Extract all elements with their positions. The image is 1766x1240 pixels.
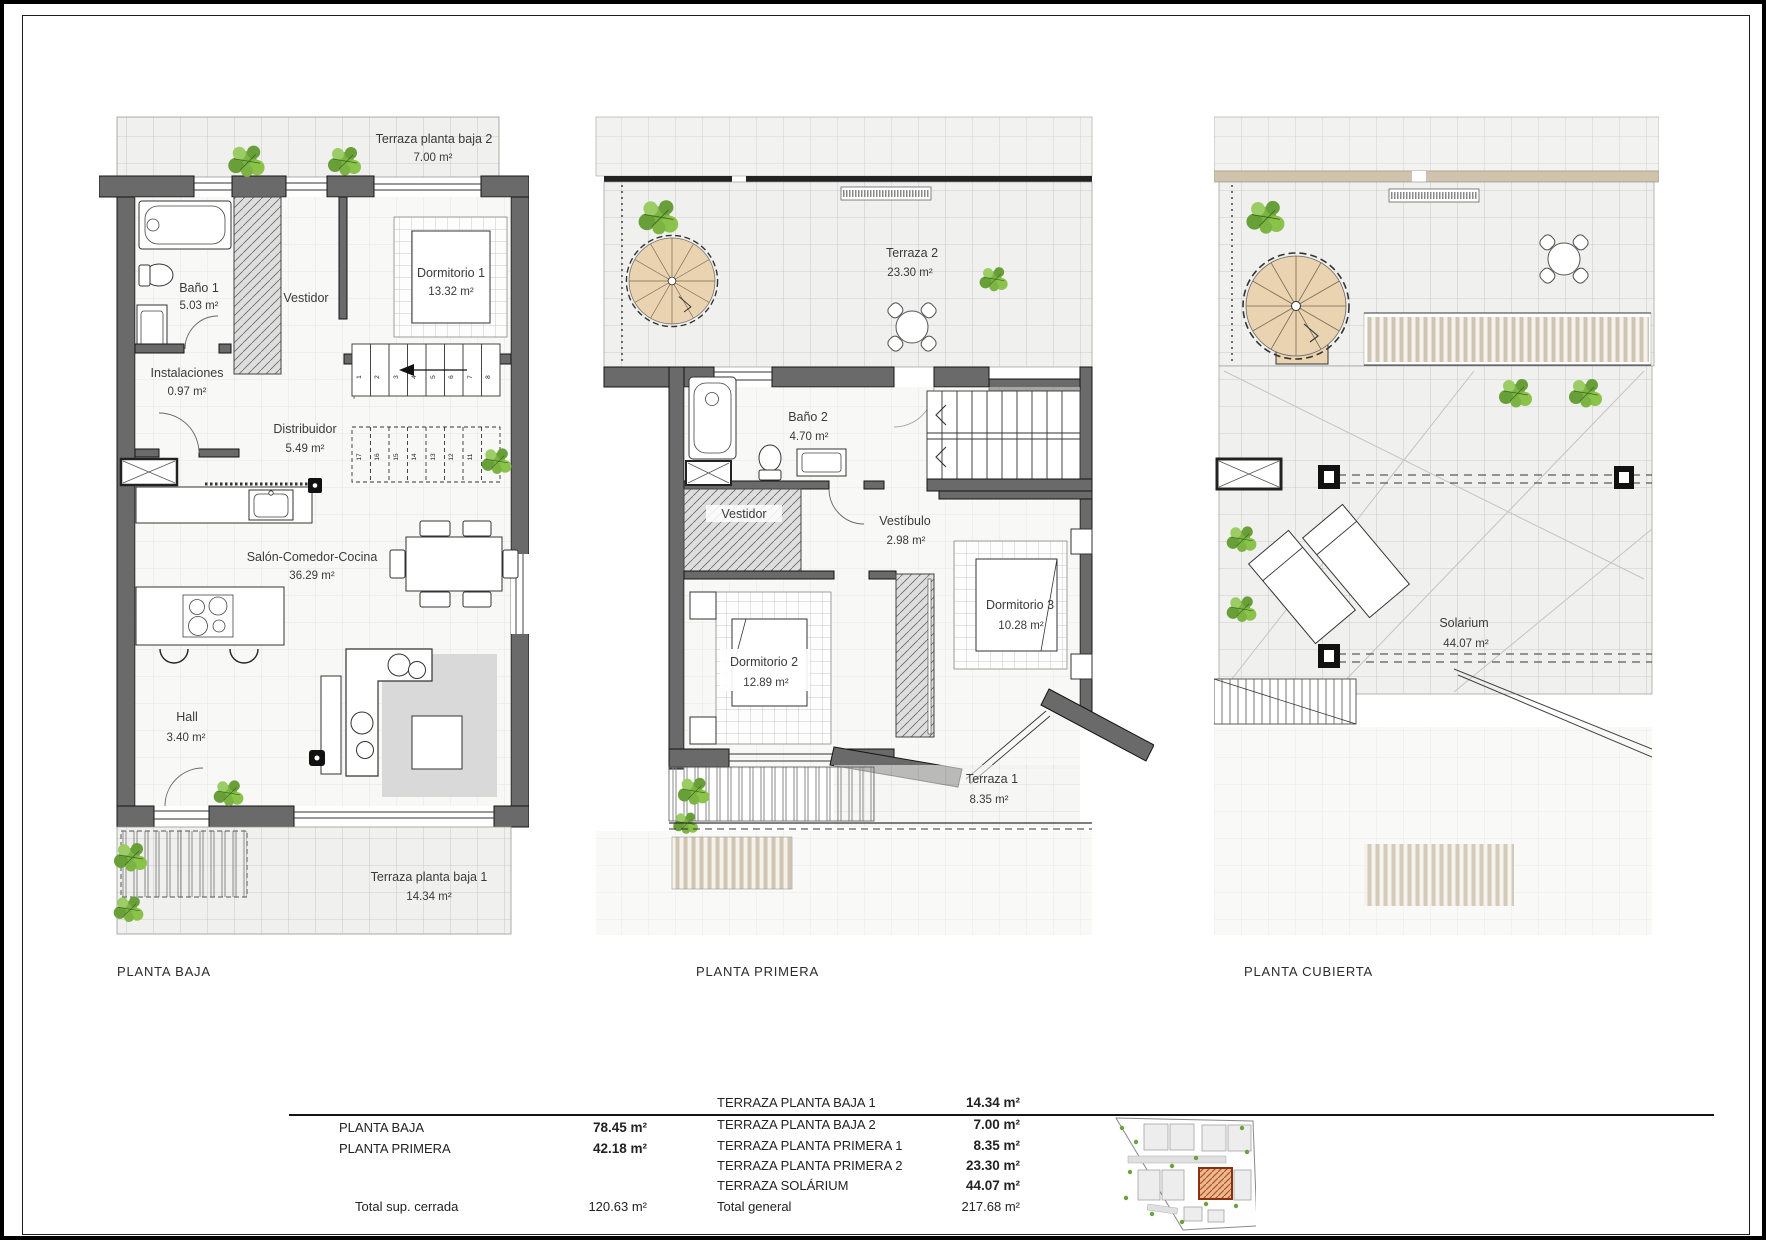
svg-text:Solarium: Solarium	[1439, 616, 1488, 630]
svg-text:3: 3	[393, 375, 400, 379]
summary-value: 217.68 m²	[961, 1199, 1020, 1214]
summary-label: TERRAZA PLANTA PRIMERA 1	[717, 1138, 902, 1153]
svg-text:15: 15	[393, 453, 400, 461]
summary-rule	[289, 1114, 1714, 1116]
svg-text:16: 16	[374, 453, 381, 461]
summary-value: 23.30 m²	[966, 1158, 1020, 1173]
summary-label: TERRAZA PLANTA BAJA 1	[717, 1095, 876, 1110]
site-location-map	[1086, 1112, 1256, 1237]
wardrobe-closet	[234, 197, 281, 374]
summary-label: TERRAZA SOLÁRIUM	[717, 1178, 848, 1193]
summary-value: 42.18 m²	[593, 1141, 647, 1156]
balustrade-louvers	[1364, 313, 1651, 365]
room-label: Vestidor	[283, 291, 328, 305]
svg-text:13.32 m²: 13.32 m²	[428, 286, 474, 298]
summary-label: Total general	[717, 1199, 791, 1214]
title-planta-primera: PLANTA PRIMERA	[696, 964, 819, 979]
svg-text:14: 14	[411, 453, 418, 461]
bedroom-1: Dormitorio 1 13.32 m²	[394, 217, 507, 337]
title-planta-baja: PLANTA BAJA	[117, 964, 211, 979]
exterior-wall-top	[99, 176, 529, 197]
summary-label: TERRAZA PLANTA PRIMERA 2	[717, 1158, 902, 1173]
wardrobe-closet	[684, 489, 801, 571]
title-planta-cubierta: PLANTA CUBIERTA	[1244, 964, 1373, 979]
svg-text:0.97 m²: 0.97 m²	[168, 386, 207, 398]
svg-text:8.35 m²: 8.35 m²	[970, 794, 1009, 806]
staircase-upper	[927, 391, 1092, 491]
summary-row: TERRAZA PLANTA BAJA 2 7.00 m²	[717, 1117, 1020, 1132]
svg-text:1: 1	[356, 375, 363, 379]
room-label: Terraza planta baja 2	[376, 132, 493, 146]
svg-text:4.70 m²: 4.70 m²	[790, 431, 829, 443]
plan-planta-cubierta: Solarium 44.07 m²	[1214, 109, 1659, 939]
svg-text:Vestidor: Vestidor	[721, 507, 766, 521]
svg-text:Vestíbulo: Vestíbulo	[879, 514, 930, 528]
svg-text:3.40 m²: 3.40 m²	[167, 732, 206, 744]
svg-text:10.28 m²: 10.28 m²	[998, 620, 1044, 632]
summary-value: 120.63 m²	[588, 1199, 647, 1214]
summary-value: 44.07 m²	[966, 1178, 1020, 1193]
svg-text:17: 17	[356, 453, 363, 461]
exterior-stair-band	[1214, 679, 1356, 724]
svg-text:4: 4	[411, 375, 418, 379]
coffee-table-icon	[412, 716, 462, 769]
summary-value: 8.35 m²	[973, 1138, 1020, 1153]
svg-text:5.03 m²: 5.03 m²	[180, 300, 219, 312]
terrace-top-tiles	[117, 117, 499, 177]
summary-value: 14.34 m²	[966, 1095, 1020, 1110]
svg-text:Baño 1: Baño 1	[179, 281, 219, 295]
exterior-wall-left	[117, 197, 135, 827]
svg-text:Dormitorio 3: Dormitorio 3	[986, 598, 1054, 612]
plan-planta-baja: Terraza planta baja 2 7.00 m² Baño 1	[99, 109, 529, 939]
svg-text:7: 7	[467, 375, 474, 379]
svg-text:44.07 m²: 44.07 m²	[1443, 638, 1489, 650]
svg-text:6: 6	[448, 375, 455, 379]
summary-row: PLANTA PRIMERA 42.18 m²	[339, 1141, 647, 1156]
summary-value: 78.45 m²	[593, 1120, 647, 1135]
wall-stub	[339, 197, 347, 319]
svg-text:Dormitorio 2: Dormitorio 2	[730, 655, 798, 669]
svg-text:Salón-Comedor-Cocina: Salón-Comedor-Cocina	[247, 550, 378, 564]
exterior-wall-left	[669, 367, 684, 769]
svg-text:Terraza planta baja 1: Terraza planta baja 1	[371, 870, 488, 884]
toilet-icon	[759, 445, 781, 471]
svg-text:14.34 m²: 14.34 m²	[406, 891, 452, 903]
svg-text:8: 8	[485, 375, 492, 379]
summary-row: PLANTA BAJA 78.45 m²	[339, 1120, 647, 1135]
svg-text:2.98 m²: 2.98 m²	[887, 535, 926, 547]
louver-band	[672, 837, 792, 889]
highlighted-unit	[1199, 1168, 1232, 1199]
summary-label: TERRAZA PLANTA BAJA 2	[717, 1117, 876, 1132]
svg-text:Distribuidor: Distribuidor	[273, 422, 336, 436]
summary-row: TERRAZA SOLÁRIUM 44.07 m²	[717, 1178, 1020, 1193]
svg-text:36.29 m²: 36.29 m²	[289, 570, 335, 582]
exterior-wall-right	[511, 197, 529, 827]
deck-slats	[1364, 844, 1514, 906]
svg-text:Instalaciones: Instalaciones	[151, 366, 224, 380]
summary-row: TERRAZA PLANTA PRIMERA 2 23.30 m²	[717, 1158, 1020, 1173]
svg-text:Hall: Hall	[176, 710, 198, 724]
svg-text:13: 13	[430, 453, 437, 461]
summary-row: TERRAZA PLANTA PRIMERA 1 8.35 m²	[717, 1138, 1020, 1153]
summary-label: PLANTA PRIMERA	[339, 1141, 451, 1156]
summary-total-row: Total general 217.68 m²	[717, 1199, 1020, 1214]
svg-text:Baño 2: Baño 2	[788, 410, 828, 424]
summary-row: TERRAZA PLANTA BAJA 1 14.34 m²	[717, 1095, 1020, 1110]
svg-text:11: 11	[467, 453, 474, 460]
svg-text:12: 12	[448, 453, 455, 461]
svg-text:Terraza 1: Terraza 1	[966, 772, 1018, 786]
summary-total-row: Total sup. cerrada 120.63 m²	[339, 1199, 647, 1214]
parapet-band	[1214, 171, 1659, 182]
svg-text:23.30 m²: 23.30 m²	[887, 267, 933, 279]
plan-planta-primera: Terraza 2 23.30 m²	[594, 109, 1154, 939]
svg-text:Terraza 2: Terraza 2	[886, 246, 938, 260]
room-area: 7.00 m²	[414, 152, 453, 164]
svg-text:5.49 m²: 5.49 m²	[286, 443, 325, 455]
svg-text:12.89 m²: 12.89 m²	[743, 677, 789, 689]
svg-text:5: 5	[430, 375, 437, 379]
solarium-tiles	[1219, 366, 1652, 694]
summary-value: 7.00 m²	[973, 1117, 1020, 1132]
svg-text:Dormitorio 1: Dormitorio 1	[417, 266, 485, 280]
svg-text:2: 2	[374, 375, 381, 379]
floorplan-sheet: Terraza planta baja 2 7.00 m² Baño 1	[0, 0, 1766, 1240]
summary-label: Total sup. cerrada	[339, 1199, 458, 1214]
summary-label: PLANTA BAJA	[339, 1120, 424, 1135]
